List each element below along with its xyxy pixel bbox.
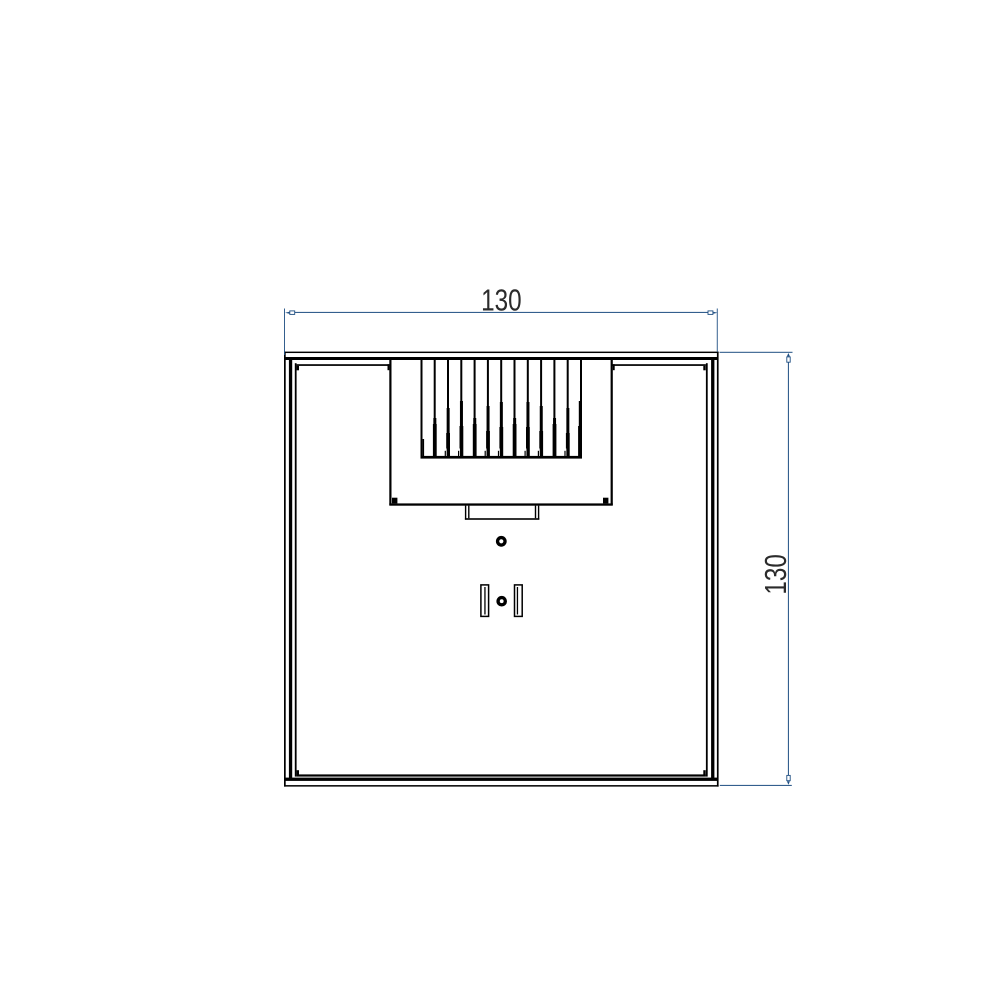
svg-text:130: 130: [758, 554, 793, 595]
svg-text:130: 130: [481, 282, 522, 317]
